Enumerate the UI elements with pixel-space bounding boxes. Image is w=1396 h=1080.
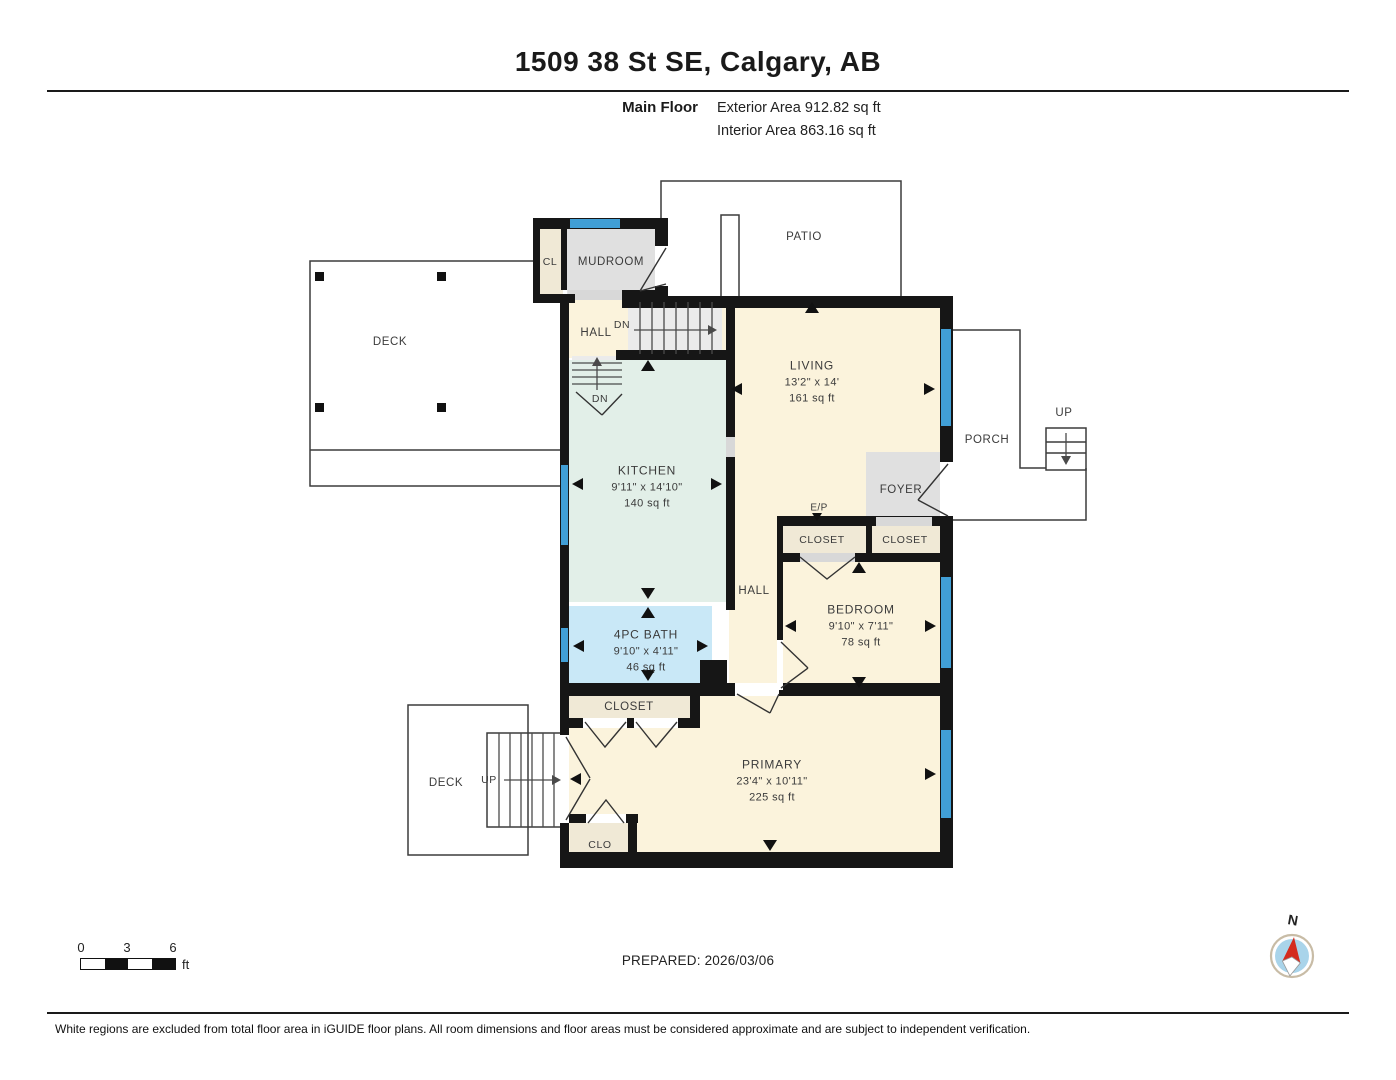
label-cl: CL xyxy=(543,256,558,268)
label-closet-ep-left: CLOSET xyxy=(799,534,845,546)
label-porch: PORCH xyxy=(965,434,1010,446)
label-ep: E/P xyxy=(810,503,827,514)
room-label-bath: 4PC BATH 9'10" x 4'11" 46 sq ft xyxy=(614,626,679,676)
label-patio: PATIO xyxy=(786,231,822,243)
label-deck-lower: DECK xyxy=(429,777,463,789)
label-deck-upper: DECK xyxy=(373,336,407,348)
disclaimer-text: White regions are excluded from total fl… xyxy=(55,1022,1030,1036)
floor-plan-drawing xyxy=(0,0,1396,1080)
label-hall-upper: HALL xyxy=(580,327,611,339)
label-dn-stairs: DN xyxy=(614,319,630,331)
room-label-kitchen: KITCHEN 9'11" x 14'10" 140 sq ft xyxy=(611,462,682,512)
label-up-deck: UP xyxy=(481,774,497,786)
label-dn-basement: DN xyxy=(592,393,608,405)
prepared-date: PREPARED: 2026/03/06 xyxy=(0,953,1396,968)
label-mudroom: MUDROOM xyxy=(578,256,644,268)
room-label-bedroom: BEDROOM 9'10" x 7'11" 78 sq ft xyxy=(827,601,895,651)
label-clo: CLO xyxy=(588,839,611,851)
label-hall-lower: HALL xyxy=(738,585,769,597)
floorplan-sheet: 1509 38 St SE, Calgary, AB Main Floor Ex… xyxy=(0,0,1396,1080)
label-closet-primary: CLOSET xyxy=(604,701,654,713)
room-label-primary: PRIMARY 23'4" x 10'11" 225 sq ft xyxy=(736,756,807,806)
label-up-porch: UP xyxy=(1055,407,1072,419)
label-closet-ep-right: CLOSET xyxy=(882,534,928,546)
room-label-living: LIVING 13'2" x 14' 161 sq ft xyxy=(785,357,840,407)
footer-divider xyxy=(47,1012,1349,1014)
label-foyer: FOYER xyxy=(880,484,923,496)
